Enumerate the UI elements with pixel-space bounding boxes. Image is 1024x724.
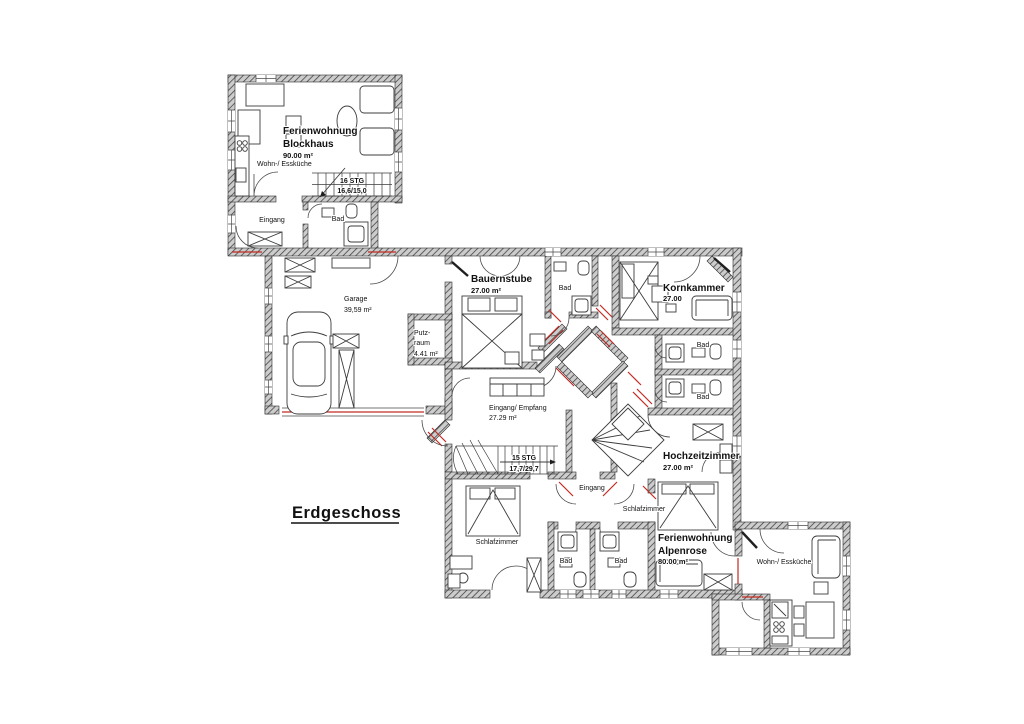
label-hochzeitzimmer: Hochzeitzimmer <box>663 451 740 462</box>
floor-plan-drawing: Ferienwohnung Blockhaus 90.00 m² Wohn-/ … <box>0 0 1024 724</box>
page-title: Erdgeschoss <box>292 504 401 522</box>
label-blockhaus-stairs1: 16 STG <box>340 178 365 185</box>
bath-lower-fixtures <box>666 379 721 397</box>
label-bath-upper: Bad <box>697 342 710 349</box>
schlafzimmer-west-bed <box>466 486 520 536</box>
label-alpenrose-name2: Alpenrose <box>658 546 707 557</box>
annex-table-chairs <box>794 602 834 638</box>
label-annex-kitchen: Wohn-/ Essküche <box>757 559 812 566</box>
floor-plan-page: Ferienwohnung Blockhaus 90.00 m² Wohn-/ … <box>0 0 1024 724</box>
label-blockhaus-kitchen: Wohn-/ Essküche <box>257 161 312 168</box>
label-putzraum-area: 4.41 m² <box>414 351 438 358</box>
label-hochzeitzimmer-area: 27.00 m² <box>663 463 694 472</box>
label-bath-bottom-right: Bad <box>615 558 628 565</box>
blockhaus-entry-furniture <box>248 232 282 246</box>
label-alpenrose-area: 80.00 m² <box>658 557 689 566</box>
label-blockhaus-name2: Blockhaus <box>283 139 334 150</box>
label-empfang-stairs1: 15 STG <box>512 455 537 462</box>
label-kornkammer: Kornkammer <box>663 283 725 294</box>
blockhaus-kitchen <box>235 136 249 196</box>
label-putzraum-2: raum <box>414 340 430 347</box>
label-bath-lower: Bad <box>697 394 710 401</box>
schlafzimmer-west-desk <box>448 556 541 592</box>
garage-car <box>284 312 334 414</box>
kornkammer-sofa <box>692 296 732 320</box>
label-putzraum-1: Putz- <box>414 330 431 337</box>
label-kornkammer-area: 27.00 <box>663 294 682 303</box>
garage-shelves <box>285 258 315 288</box>
blockhaus-armchairs <box>337 86 394 155</box>
bath-upper-fixtures <box>666 344 721 362</box>
label-alpenrose-bedroom: Schlafzimmer <box>623 506 666 513</box>
garage-bench <box>332 258 370 268</box>
label-alpenrose-name1: Ferienwohnung <box>658 533 732 544</box>
label-blockhaus-area: 90.00 m² <box>283 151 314 160</box>
annex-kitchen <box>770 600 792 646</box>
label-vestibule-entrance: Eingang <box>579 485 605 492</box>
stairs-empfang <box>453 440 558 474</box>
label-garage: Garage <box>344 296 367 303</box>
annex-sofa <box>812 536 840 594</box>
label-bauernstube-area: 27.00 m² <box>471 286 502 295</box>
label-blockhaus-bath: Bad <box>332 216 345 223</box>
label-bauernstube: Bauernstube <box>471 274 533 285</box>
hochzeitzimmer-wardrobe <box>693 424 732 473</box>
label-empfang-area: 27.29 m² <box>489 415 517 422</box>
furniture-layer <box>235 84 840 646</box>
label-garage-area: 39,59 m² <box>344 307 372 314</box>
label-blockhaus-entrance: Eingang <box>259 217 285 224</box>
label-blockhaus-stairs2: 16,6/15,0 <box>337 188 366 195</box>
label-bauernstube-bath: Bad <box>559 285 572 292</box>
label-empfang-stairs2: 17,7/29,7 <box>509 466 538 473</box>
label-empfang: Eingang/ Empfang <box>489 405 547 412</box>
garage-column <box>333 334 359 408</box>
label-blockhaus-name1: Ferienwohnung <box>283 126 357 137</box>
label-bath-bottom-left: Bad <box>560 558 573 565</box>
label-schlafzimmer-west: Schlafzimmer <box>476 539 519 546</box>
alpenrose-bed <box>658 482 718 530</box>
empfang-sofa <box>490 378 544 396</box>
blockhaus-bath-fixtures <box>322 204 368 246</box>
